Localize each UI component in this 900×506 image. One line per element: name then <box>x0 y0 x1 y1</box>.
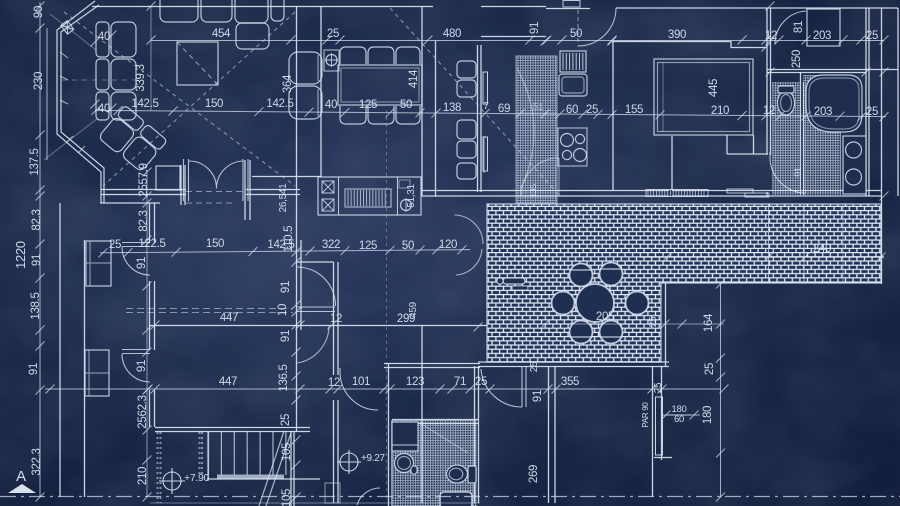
svg-text:101: 101 <box>352 376 370 388</box>
svg-text:69: 69 <box>498 103 510 115</box>
svg-text:135: 135 <box>528 184 538 198</box>
svg-text:25: 25 <box>866 30 878 42</box>
svg-text:480: 480 <box>443 28 461 40</box>
svg-text:A: A <box>16 468 26 485</box>
svg-text:120: 120 <box>439 239 457 251</box>
svg-text:25: 25 <box>529 361 540 372</box>
svg-text:205: 205 <box>596 311 614 323</box>
svg-text:+7.90: +7.90 <box>184 472 210 484</box>
svg-text:25: 25 <box>648 316 659 327</box>
svg-text:414: 414 <box>408 69 420 88</box>
svg-text:142.5: 142.5 <box>266 98 293 110</box>
svg-text:40: 40 <box>98 31 110 43</box>
svg-text:125: 125 <box>359 240 377 252</box>
svg-text:12: 12 <box>328 377 340 389</box>
svg-text:142.5: 142.5 <box>131 98 158 110</box>
svg-text:PAR 90: PAR 90 <box>641 402 650 428</box>
svg-text:10: 10 <box>277 304 289 316</box>
svg-text:447: 447 <box>219 376 237 388</box>
svg-text:2557.9: 2557.9 <box>138 163 150 196</box>
svg-text:40: 40 <box>98 103 110 115</box>
svg-text:210: 210 <box>711 105 729 117</box>
svg-text:25: 25 <box>866 106 878 118</box>
svg-text:+9.27: +9.27 <box>361 453 386 464</box>
svg-text:91: 91 <box>532 390 544 402</box>
svg-text:40: 40 <box>325 99 337 111</box>
svg-text:125: 125 <box>359 99 377 111</box>
svg-text:50: 50 <box>570 28 582 40</box>
svg-text:250: 250 <box>791 50 803 68</box>
svg-text:339.3: 339.3 <box>135 64 147 91</box>
svg-text:155: 155 <box>625 104 643 116</box>
svg-text:90: 90 <box>33 6 45 18</box>
svg-text:355: 355 <box>561 376 579 388</box>
svg-text:91: 91 <box>280 281 292 293</box>
svg-text:91: 91 <box>793 167 803 177</box>
svg-text:25: 25 <box>586 104 598 116</box>
svg-text:390: 390 <box>668 29 686 41</box>
svg-text:60: 60 <box>674 414 684 425</box>
svg-text:51,31: 51,31 <box>406 184 417 208</box>
svg-text:81: 81 <box>793 21 805 33</box>
svg-text:138: 138 <box>443 102 461 114</box>
svg-text:454: 454 <box>212 28 231 40</box>
svg-text:164: 164 <box>703 313 715 332</box>
svg-text:138.5: 138.5 <box>30 292 42 319</box>
svg-text:230: 230 <box>33 72 45 90</box>
svg-text:210: 210 <box>137 467 149 485</box>
svg-text:110.5: 110.5 <box>283 226 295 252</box>
svg-text:203: 203 <box>813 30 831 42</box>
svg-text:137.5: 137.5 <box>29 148 41 175</box>
svg-text:71: 71 <box>454 376 466 388</box>
svg-text:122.5: 122.5 <box>138 238 165 250</box>
svg-text:82.3: 82.3 <box>31 209 43 230</box>
svg-text:240: 240 <box>813 243 831 255</box>
svg-text:105: 105 <box>281 443 293 461</box>
svg-text:50: 50 <box>400 99 412 111</box>
svg-text:91: 91 <box>136 360 148 372</box>
svg-text:203: 203 <box>814 106 832 118</box>
svg-text:123: 123 <box>406 376 424 388</box>
svg-text:25: 25 <box>280 414 292 426</box>
svg-text:91: 91 <box>529 22 541 34</box>
svg-text:105: 105 <box>281 489 293 506</box>
svg-text:459: 459 <box>408 301 419 318</box>
svg-text:25: 25 <box>327 28 339 40</box>
svg-text:25: 25 <box>109 239 121 251</box>
svg-text:25: 25 <box>475 376 487 388</box>
svg-text:180: 180 <box>702 406 714 424</box>
svg-text:91: 91 <box>280 330 292 342</box>
svg-text:150: 150 <box>206 238 224 250</box>
svg-text:26,541: 26,541 <box>278 183 289 213</box>
svg-text:150: 150 <box>205 98 223 110</box>
svg-text:322.3: 322.3 <box>31 448 43 475</box>
svg-text:447: 447 <box>220 312 238 324</box>
svg-text:51: 51 <box>533 102 544 113</box>
svg-text:269: 269 <box>528 465 540 483</box>
svg-text:364: 364 <box>282 74 294 93</box>
svg-text:12: 12 <box>330 313 342 325</box>
svg-text:60: 60 <box>566 104 578 116</box>
svg-text:322: 322 <box>322 239 340 251</box>
svg-text:2562.3: 2562.3 <box>137 395 149 428</box>
svg-text:50: 50 <box>402 240 414 252</box>
svg-text:91: 91 <box>28 363 40 375</box>
svg-text:91: 91 <box>31 254 43 266</box>
svg-text:82.3: 82.3 <box>138 210 150 231</box>
svg-text:445: 445 <box>708 79 720 97</box>
svg-text:12: 12 <box>763 105 775 117</box>
svg-text:91: 91 <box>136 257 148 269</box>
svg-text:7: 7 <box>483 101 489 112</box>
svg-text:25: 25 <box>704 363 716 375</box>
svg-text:1220: 1220 <box>13 241 28 269</box>
svg-text:136.5: 136.5 <box>278 364 290 391</box>
svg-text:12: 12 <box>765 30 777 42</box>
svg-text:25: 25 <box>653 382 664 393</box>
